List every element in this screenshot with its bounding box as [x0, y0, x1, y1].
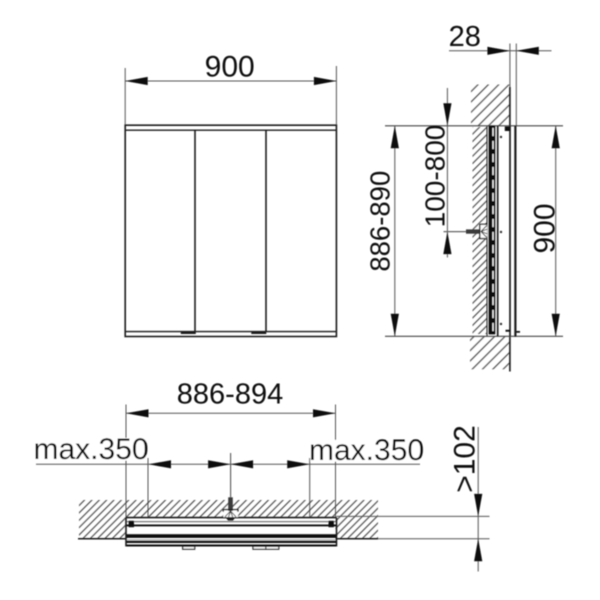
svg-text:100-800: 100-800	[419, 125, 450, 228]
svg-text:886-894: 886-894	[177, 378, 283, 410]
svg-text:900: 900	[529, 203, 562, 253]
svg-text:max.350: max.350	[309, 434, 424, 467]
svg-text:>102: >102	[449, 425, 482, 493]
svg-text:28: 28	[449, 21, 481, 53]
svg-text:886-890: 886-890	[365, 171, 396, 272]
svg-text:max.350: max.350	[34, 433, 149, 466]
svg-text:900: 900	[205, 51, 255, 84]
